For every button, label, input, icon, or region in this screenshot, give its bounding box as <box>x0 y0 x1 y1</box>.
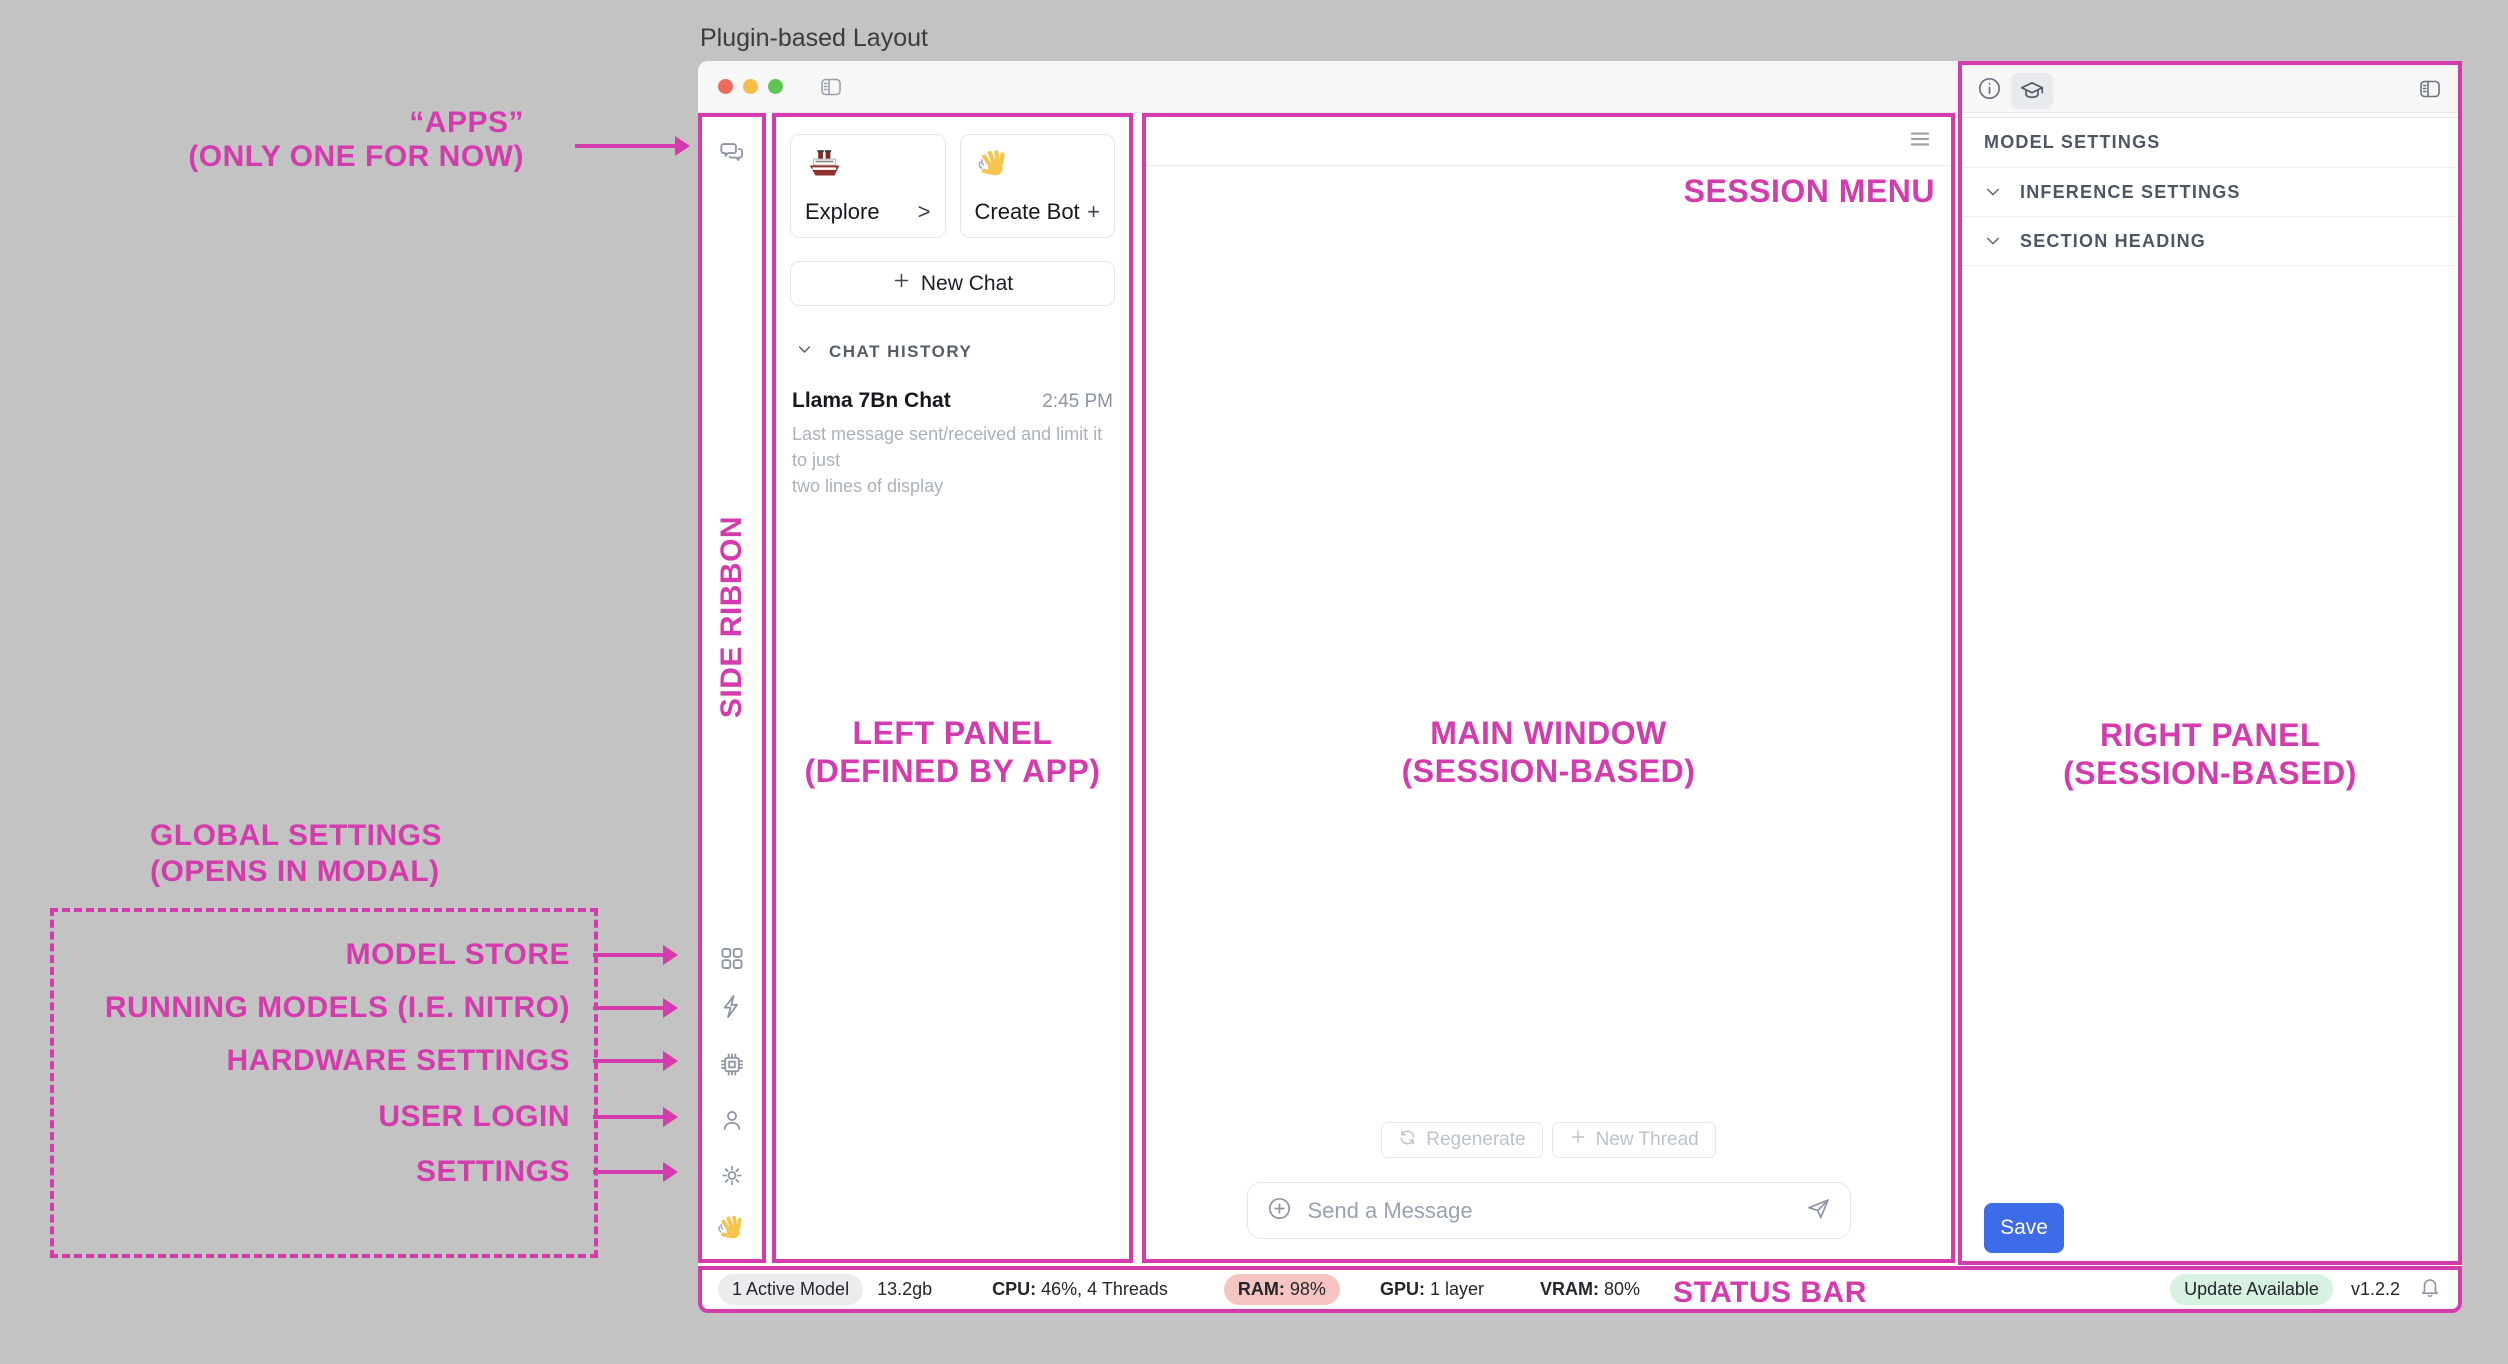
ram-stat-badge: RAM: 98% <box>1224 1274 1340 1305</box>
plus-icon <box>1569 1128 1587 1152</box>
lightning-icon[interactable] <box>719 993 746 1020</box>
chevron-down-icon <box>1984 232 2002 250</box>
save-button[interactable]: Save <box>1984 1203 2064 1253</box>
user-icon[interactable] <box>719 1107 746 1134</box>
chat-history-label: CHAT HISTORY <box>829 342 972 362</box>
sidebar-toggle-icon[interactable] <box>817 75 845 99</box>
left-panel-annotation: LEFT PANEL (DEFINED BY APP) <box>776 714 1129 790</box>
page-title: Plugin-based Layout <box>700 24 928 53</box>
send-icon[interactable] <box>1805 1195 1832 1227</box>
graduation-cap-icon[interactable] <box>2011 73 2053 109</box>
chat-bubbles-icon[interactable] <box>719 139 746 166</box>
inference-settings-section[interactable]: INFERENCE SETTINGS <box>1962 168 2458 217</box>
annotation-arrow-running-models <box>593 1006 663 1010</box>
design-canvas: Plugin-based Layout SIDE RIBBON <box>0 0 2508 1364</box>
chat-item-preview-line2: two lines of display <box>792 473 1113 499</box>
main-topbar <box>1146 117 1951 166</box>
right-panel: MODEL SETTINGS INFERENCE SETTINGS SECTIO… <box>1958 61 2462 1265</box>
annotation-arrow-settings <box>593 1170 663 1174</box>
main-window-annotation: MAIN WINDOW (SESSION-BASED) <box>1146 714 1951 790</box>
chat-item-preview-line1: Last message sent/received and limit it … <box>792 421 1113 473</box>
model-size: 13.2gb <box>877 1279 932 1300</box>
annotation-arrow-user-login <box>593 1115 663 1119</box>
hamburger-menu-icon[interactable] <box>1905 126 1935 157</box>
vram-stat: VRAM: 80% <box>1540 1279 1640 1300</box>
wave-hand-icon[interactable] <box>715 1213 749 1247</box>
chat-item-title: Llama 7Bn Chat <box>792 389 951 413</box>
grid-icon[interactable] <box>719 945 746 972</box>
annotation-arrow-model-store <box>593 953 663 957</box>
side-ribbon: SIDE RIBBON <box>698 113 766 1263</box>
app-version: v1.2.2 <box>2351 1279 2400 1300</box>
chevron-down-icon <box>796 341 813 363</box>
ship-icon <box>805 147 931 190</box>
explore-card-chevron: > <box>918 199 931 225</box>
create-bot-card-label: Create Bot <box>975 199 1080 225</box>
chat-item-time: 2:45 PM <box>1042 391 1113 413</box>
chat-history-header[interactable]: CHAT HISTORY <box>790 341 1115 363</box>
cpu-stat: CPU: 46%, 4 Threads <box>992 1279 1168 1300</box>
right-panel-annotation: RIGHT PANEL (SESSION-BASED) <box>1962 716 2458 792</box>
status-bar: 1 Active Model 13.2gb CPU: 46%, 4 Thread… <box>698 1266 2462 1313</box>
cpu-chip-icon[interactable] <box>719 1051 746 1078</box>
side-ribbon-annotation: SIDE RIBBON <box>715 516 749 718</box>
chat-history-item[interactable]: Llama 7Bn Chat 2:45 PM Last message sent… <box>790 389 1115 499</box>
annotation-model-store: MODEL STORE <box>346 937 570 973</box>
attach-plus-icon[interactable] <box>1266 1195 1293 1227</box>
update-available-badge[interactable]: Update Available <box>2170 1274 2333 1305</box>
left-panel: Explore > <box>772 113 1133 1263</box>
annotation-running-models: RUNNING MODELS (I.E. NITRO) <box>105 990 570 1026</box>
wave-hand-icon <box>975 147 1101 190</box>
right-panel-topbar <box>1962 65 2458 118</box>
session-menu-annotation: SESSION MENU <box>1684 173 1935 210</box>
annotation-arrow-hardware-settings <box>593 1059 663 1063</box>
gpu-stat: GPU: 1 layer <box>1380 1279 1484 1300</box>
new-thread-button[interactable]: New Thread <box>1552 1122 1716 1158</box>
new-chat-label: New Chat <box>921 272 1013 296</box>
status-bar-annotation: STATUS BAR <box>1673 1276 1867 1310</box>
annotation-arrow-apps <box>575 144 675 148</box>
plus-icon <box>892 271 911 296</box>
annotation-settings: SETTINGS <box>416 1154 570 1190</box>
info-icon[interactable] <box>1976 75 2003 107</box>
annotation-user-login: USER LOGIN <box>378 1099 570 1135</box>
explore-card-label: Explore <box>805 199 880 225</box>
active-model-badge: 1 Active Model <box>718 1274 863 1305</box>
bell-icon[interactable] <box>2418 1275 2442 1304</box>
new-chat-button[interactable]: New Chat <box>790 261 1115 306</box>
minimize-window-button[interactable] <box>743 79 758 94</box>
message-input-container <box>1247 1182 1851 1239</box>
new-thread-label: New Thread <box>1596 1129 1699 1151</box>
maximize-window-button[interactable] <box>768 79 783 94</box>
regenerate-label: Regenerate <box>1426 1129 1525 1151</box>
create-bot-card-plus: + <box>1087 199 1100 225</box>
explore-card[interactable]: Explore > <box>790 134 946 238</box>
apps-annotation: “APPS” (ONLY ONE FOR NOW) <box>140 106 524 174</box>
annotation-hardware-settings: HARDWARE SETTINGS <box>226 1043 570 1079</box>
global-settings-annotation: GLOBAL SETTINGS (OPENS IN MODAL) <box>150 818 442 890</box>
main-window: SESSION MENU MAIN WINDOW (SESSION-BASED)… <box>1142 113 1955 1263</box>
section-heading-section[interactable]: SECTION HEADING <box>1962 217 2458 266</box>
model-settings-header: MODEL SETTINGS <box>1962 118 2458 168</box>
close-window-button[interactable] <box>718 79 733 94</box>
refresh-icon <box>1398 1128 1417 1153</box>
regenerate-button[interactable]: Regenerate <box>1381 1122 1542 1158</box>
chevron-down-icon <box>1984 183 2002 201</box>
gear-icon[interactable] <box>719 1162 746 1189</box>
panel-toggle-icon[interactable] <box>2416 77 2444 106</box>
message-input[interactable] <box>1306 1197 1792 1225</box>
create-bot-card[interactable]: Create Bot + <box>960 134 1116 238</box>
